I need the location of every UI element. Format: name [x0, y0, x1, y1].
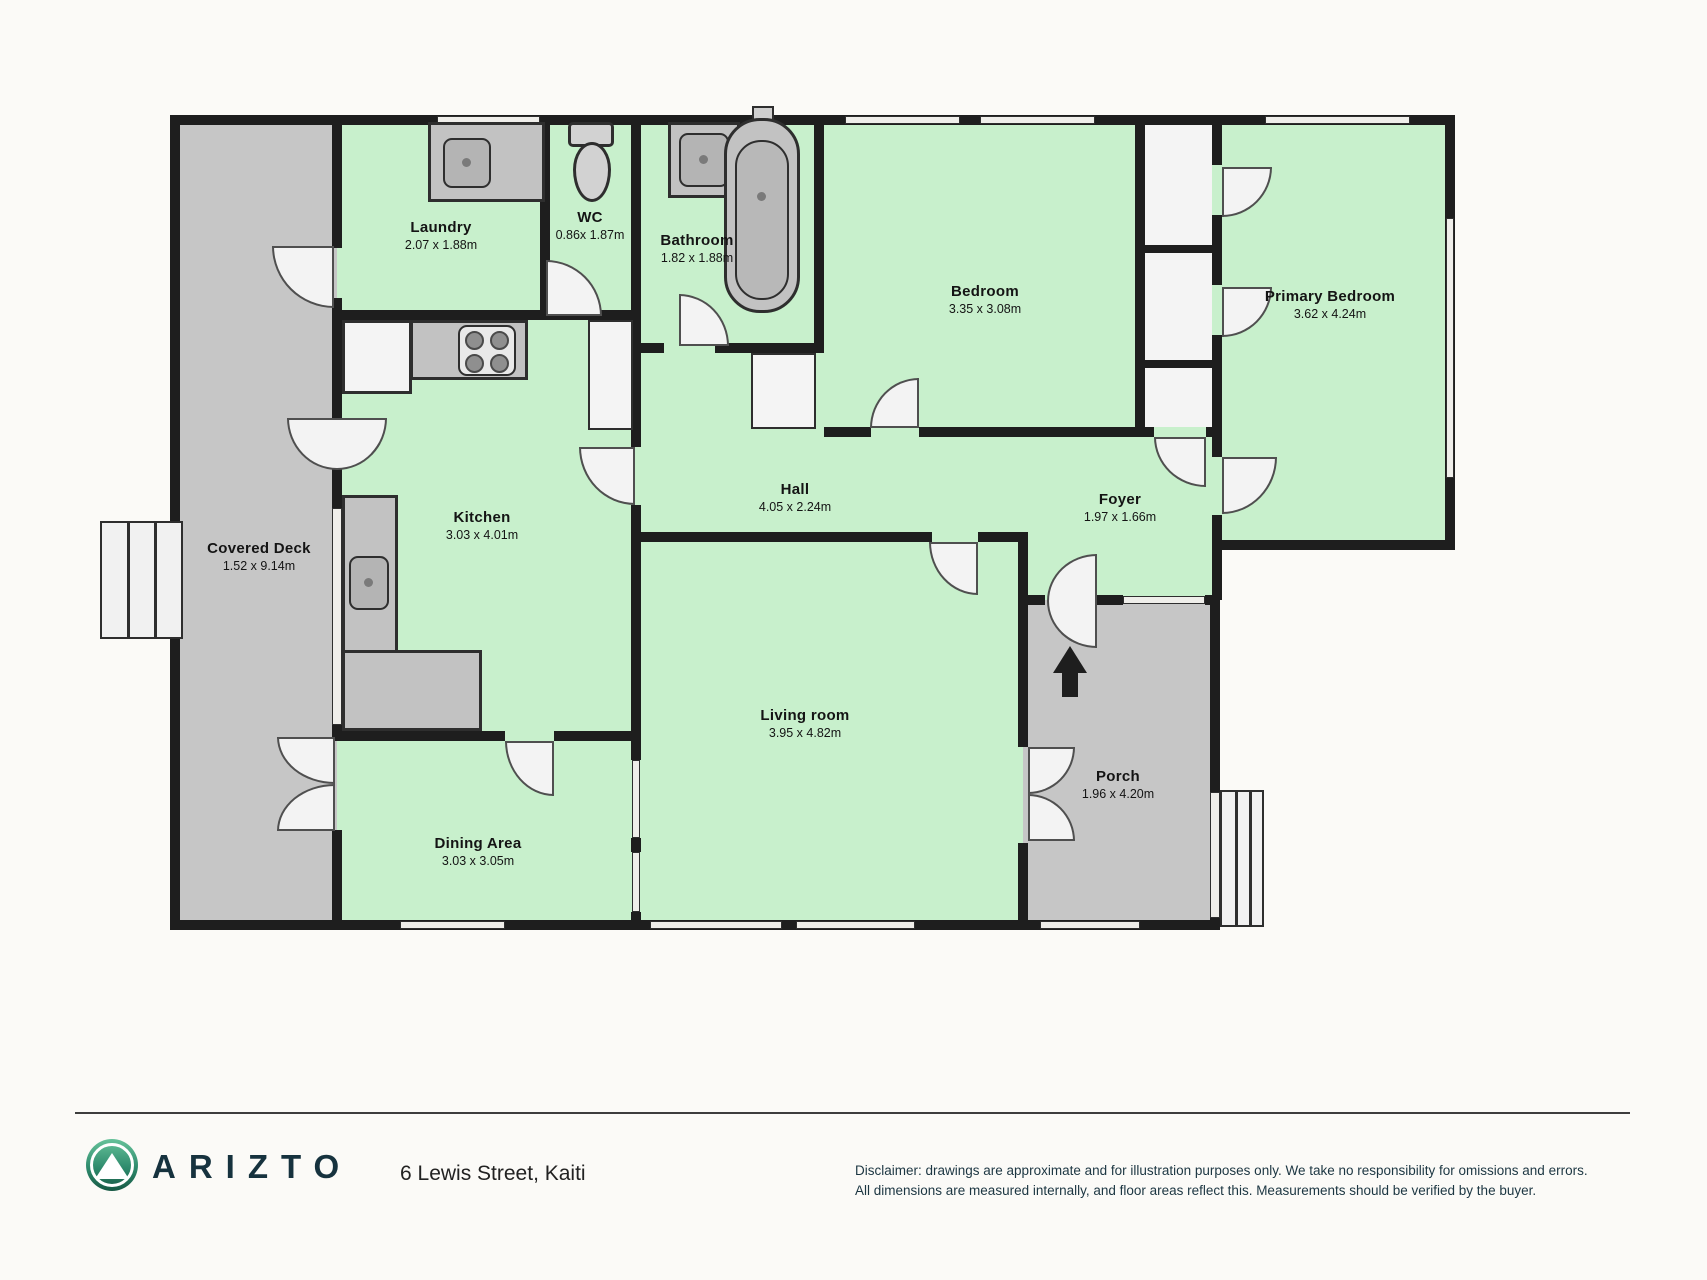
bathroom-sink-drain — [699, 155, 708, 164]
room-label-kitchen: Kitchen3.03 x 4.01m — [446, 509, 518, 542]
window-bottom-dining — [400, 921, 505, 929]
wall-foyer-right — [1212, 515, 1222, 600]
laundry-sink-drain — [462, 158, 471, 167]
stove-burner-2 — [490, 331, 509, 350]
wall-porch-right-lower — [1210, 918, 1220, 930]
wall-porch-top-3 — [1205, 595, 1218, 605]
window-bottom-living-2 — [796, 921, 915, 929]
window-primary-bedroom-right — [1446, 218, 1454, 478]
closet-cell-2 — [1145, 253, 1212, 360]
room-label-foyer: Foyer1.97 x 1.66m — [1084, 491, 1156, 524]
wall-bedroom-closet — [1135, 115, 1145, 437]
porch-steps — [1220, 790, 1264, 927]
wall-bathroom-bottom-1 — [636, 343, 664, 353]
hall-closet — [751, 353, 816, 429]
entry-arrow-icon — [1053, 646, 1087, 673]
wall-outer-top — [170, 115, 1455, 125]
room-label-laundry: Laundry2.07 x 1.88m — [405, 219, 477, 252]
room-label-wc: WC0.86x 1.87m — [556, 209, 625, 242]
wall-wc-bathroom — [631, 115, 641, 315]
wall-porch-right-upper — [1210, 600, 1220, 792]
kitchen-sink-drain — [364, 578, 373, 587]
wall-closet-divider-2 — [1140, 360, 1212, 368]
room-label-dining-area: Dining Area3.03 x 3.05m — [435, 835, 522, 868]
wall-closet-bottom-1 — [1140, 427, 1154, 437]
stove-burner-4 — [490, 354, 509, 373]
disclaimer-line-2: All dimensions are measured internally, … — [855, 1181, 1645, 1201]
wall-primary-bedroom-bottom — [1218, 540, 1455, 550]
room-label-porch: Porch1.96 x 4.20m — [1082, 768, 1154, 801]
window-bottom-living-1 — [650, 921, 782, 929]
room-label-primary-bedroom: Primary Bedroom3.62 x 4.24m — [1265, 288, 1395, 321]
wall-bedroom-bottom-2 — [919, 427, 1140, 437]
kitchen-counter-foot — [342, 650, 482, 731]
window-dining-living-1 — [632, 760, 640, 838]
closet-cell-3 — [1145, 368, 1212, 427]
wall-living-porch-lower — [1018, 843, 1028, 930]
property-address: 6 Lewis Street, Kaiti — [400, 1162, 586, 1186]
window-dining-living-2 — [632, 852, 640, 912]
entry-arrow-stem — [1062, 672, 1078, 697]
wall-deck-1 — [332, 115, 342, 248]
wall-deck-3 — [332, 468, 342, 508]
wall-bathroom-bottom-2 — [715, 343, 824, 353]
wall-living-porch-upper — [1018, 537, 1028, 747]
stove-burner-3 — [465, 354, 484, 373]
room-label-bedroom: Bedroom3.35 x 3.08m — [949, 283, 1021, 316]
window-top-bedroom-2 — [980, 116, 1095, 124]
arizto-logo-icon — [86, 1139, 138, 1191]
deck-step-divider-2 — [154, 523, 157, 637]
wall-closet-bottom-2 — [1206, 427, 1222, 437]
wall-deck-5 — [332, 830, 342, 930]
room-label-living-room: Living room3.95 x 4.82m — [760, 707, 849, 740]
wall-porch-top-2 — [1097, 595, 1123, 605]
wall-porch-top-1 — [1023, 595, 1045, 605]
wall-dining-living-1 — [631, 542, 641, 760]
brand-name: ARIZTO — [152, 1148, 352, 1186]
room-label-covered-deck: Covered Deck1.52 x 9.14m — [207, 540, 311, 573]
footer-divider — [75, 1112, 1630, 1114]
room-label-hall: Hall4.05 x 2.24m — [759, 481, 831, 514]
room-label-bathroom: Bathroom1.82 x 1.88m — [660, 232, 733, 265]
wall-closet-divider-1 — [1140, 245, 1212, 253]
bathtub-drain — [757, 192, 766, 201]
window-top-primary-bedroom — [1265, 116, 1410, 124]
wall-living-top-2 — [978, 532, 1028, 542]
wall-dining-living-2 — [631, 838, 641, 852]
wall-bedroom-bottom-1 — [824, 427, 871, 437]
bathtub-inner — [735, 140, 789, 300]
wall-closet-right-3 — [1212, 335, 1222, 457]
floor-plan: Covered Deck1.52 x 9.14m Laundry2.07 x 1… — [0, 0, 1707, 1050]
deck-steps — [100, 521, 183, 639]
deck-step-divider-1 — [127, 523, 130, 637]
wall-dining-living-3 — [631, 912, 641, 930]
wall-closet-right-1 — [1212, 115, 1222, 165]
window-porch-front — [1123, 596, 1205, 604]
window-deck-kitchen — [332, 508, 342, 725]
wall-closet-right-2 — [1212, 215, 1222, 285]
window-top-bedroom-1 — [845, 116, 960, 124]
window-bottom-porch — [1040, 921, 1140, 929]
wall-kitchen-dining-2 — [554, 731, 641, 741]
wall-living-top-1 — [636, 532, 932, 542]
window-porch-steps-opening — [1210, 792, 1220, 918]
kitchen-closet — [588, 320, 633, 430]
closet-cell-1 — [1145, 123, 1212, 245]
porch-step-divider-2 — [1249, 792, 1252, 925]
disclaimer-line-1: Disclaimer: drawings are approximate and… — [855, 1161, 1645, 1181]
kitchen-pantry-nook — [342, 320, 412, 394]
wall-bathroom-bedroom — [814, 115, 824, 353]
wall-kitchen-dining-1 — [332, 731, 505, 741]
stove-burner-1 — [465, 331, 484, 350]
porch-step-divider-1 — [1235, 792, 1238, 925]
disclaimer-text: Disclaimer: drawings are approximate and… — [855, 1161, 1645, 1200]
